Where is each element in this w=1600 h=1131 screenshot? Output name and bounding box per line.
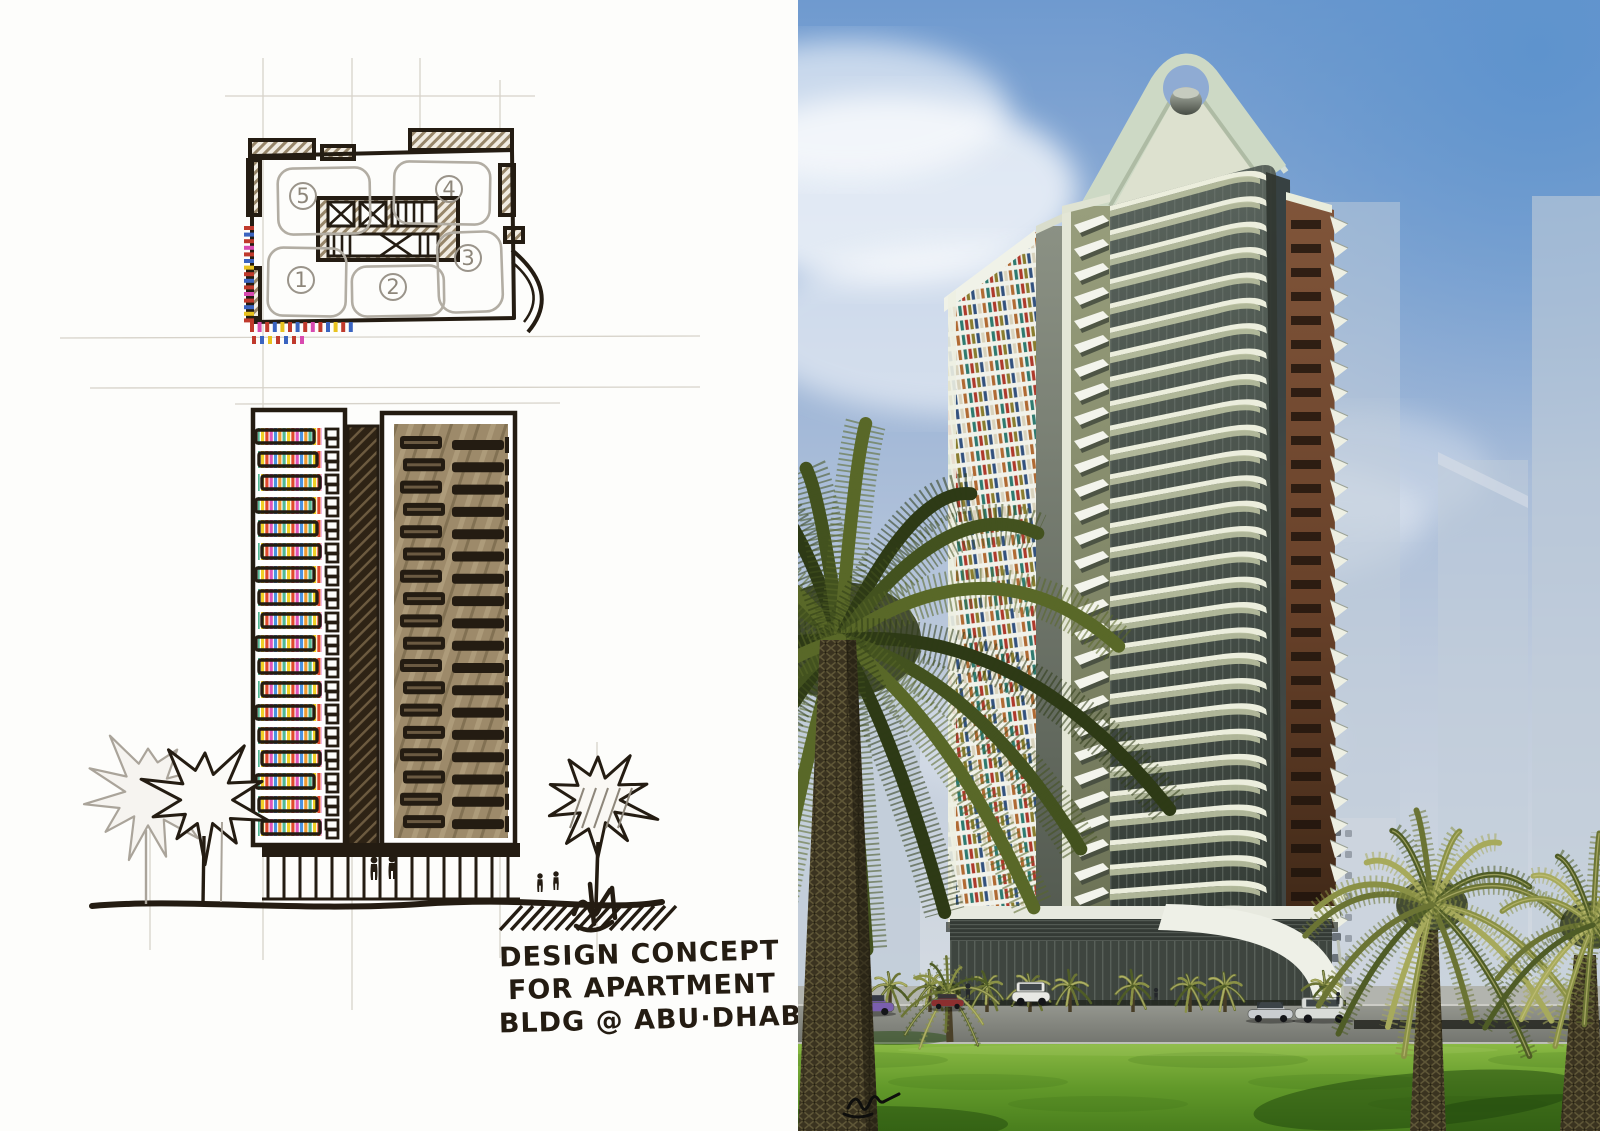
car-wheel <box>936 1004 941 1009</box>
bar-highlight <box>407 731 441 734</box>
brown-window-slot <box>1291 604 1321 613</box>
window-square <box>327 577 338 585</box>
bar-highlight <box>404 619 438 622</box>
bar-highlight <box>407 686 441 689</box>
plan-tick <box>258 322 262 332</box>
room-label-2: 2 <box>386 275 399 299</box>
floor-plan-sketch: 5 4 3 1 2 <box>244 130 542 344</box>
ghost-window <box>1345 851 1352 858</box>
plan-tick <box>244 305 254 309</box>
bar-highlight <box>404 664 438 667</box>
bar-end-tick <box>505 705 509 721</box>
window-square <box>327 807 338 815</box>
bar-highlight <box>407 597 441 600</box>
plan-tick <box>244 226 254 230</box>
brown-window-slot <box>1291 748 1321 757</box>
window-square <box>326 429 338 438</box>
plan-tick <box>244 233 254 237</box>
bar-end-tick <box>505 571 509 587</box>
plan-tick <box>268 336 272 344</box>
window-square <box>327 439 338 447</box>
dark-balcony-bar <box>452 752 504 762</box>
bar-end-tick <box>505 727 509 743</box>
bar-end-tick <box>505 749 509 765</box>
bar-end-tick <box>505 526 509 542</box>
sketch-person <box>371 857 378 880</box>
bar-end-tick <box>505 816 509 832</box>
window-square <box>326 751 338 760</box>
car-shadow <box>1246 1018 1296 1023</box>
sketch-panel: 5 4 3 1 2 <box>0 0 798 1131</box>
dark-balcony-bar <box>452 552 504 562</box>
brown-window-slot <box>1291 484 1321 493</box>
window-square <box>326 567 338 576</box>
hatch-stroke <box>621 906 643 930</box>
bar-end-tick <box>505 660 509 676</box>
bar-highlight <box>404 709 438 712</box>
window-square <box>326 659 338 668</box>
window-square <box>327 623 338 631</box>
car-wheel <box>1280 1015 1287 1022</box>
dark-balcony-bar <box>452 485 504 495</box>
plan-tick <box>250 322 254 332</box>
brown-window-slot <box>1291 892 1321 901</box>
plan-tick <box>244 285 254 289</box>
plan-tick <box>284 336 288 344</box>
bar-highlight <box>407 776 441 779</box>
tree-trunk <box>221 822 222 902</box>
brown-window-slot <box>1291 292 1321 301</box>
plan-tick <box>244 292 254 296</box>
plan-tick <box>318 322 322 332</box>
plan-tick <box>288 322 292 332</box>
brown-window-slot <box>1291 340 1321 349</box>
hatch-stroke <box>533 906 555 930</box>
bar-end-tick <box>505 459 509 475</box>
window-square <box>327 830 338 838</box>
dark-balcony-bar <box>452 663 504 673</box>
window-square <box>326 590 338 599</box>
plan-tick <box>326 322 330 332</box>
hatch-stroke <box>544 906 566 930</box>
window-square <box>326 682 338 691</box>
window-square <box>326 774 338 783</box>
ghost-window <box>1345 935 1352 942</box>
window-square <box>326 728 338 737</box>
tree-trunk <box>596 842 598 905</box>
plan-tick <box>292 336 296 344</box>
bar-highlight <box>407 553 441 556</box>
bar-end-tick <box>505 772 509 788</box>
window-square <box>326 498 338 507</box>
plan-tick <box>296 322 300 332</box>
window-square <box>326 613 338 622</box>
plan-tick <box>300 336 304 344</box>
brown-window-slot <box>1291 412 1321 421</box>
brown-window-slot <box>1291 436 1321 445</box>
plan-tick <box>244 252 254 256</box>
window-square <box>327 761 338 769</box>
plan-tick <box>265 322 269 332</box>
plan-tick <box>244 246 254 250</box>
presentation-board: 5 4 3 1 2 <box>0 0 1600 1131</box>
car-wheel <box>1255 1015 1262 1022</box>
dark-balcony-bar <box>452 797 504 807</box>
window-square <box>326 636 338 645</box>
brown-window-slot <box>1291 628 1321 637</box>
hatch-stroke <box>522 906 544 930</box>
brown-window-slot <box>1291 460 1321 469</box>
render-panel <box>798 0 1600 1131</box>
brown-window-slot <box>1291 556 1321 565</box>
dark-balcony-bar <box>452 440 504 450</box>
window-square <box>326 521 338 530</box>
bar-highlight <box>407 642 441 645</box>
room-label-3: 3 <box>461 246 474 270</box>
sketch-person <box>537 873 543 892</box>
dark-balcony-bar <box>452 462 504 472</box>
window-square <box>327 738 338 746</box>
car-windows <box>938 994 957 999</box>
hatch-stroke <box>643 906 665 930</box>
bar-end-tick <box>505 593 509 609</box>
ghost-window <box>1345 830 1352 837</box>
window-square <box>327 554 338 562</box>
brown-window-slot <box>1291 844 1321 853</box>
podium <box>948 904 1346 1006</box>
brown-window-slot <box>1291 532 1321 541</box>
bar-highlight <box>404 486 438 489</box>
plan-tick <box>311 322 315 332</box>
plan-tick <box>349 322 353 332</box>
window-square <box>327 531 338 539</box>
plan-tick <box>244 266 254 270</box>
elevation-sketch <box>84 410 676 930</box>
grass-patch <box>1008 1096 1188 1112</box>
window-square <box>326 820 338 829</box>
brown-window-slot <box>1291 676 1321 685</box>
dark-balcony-bar <box>452 641 504 651</box>
brown-window-slot <box>1291 652 1321 661</box>
tower-rendering <box>798 0 1600 1131</box>
plan-tick <box>244 279 254 283</box>
brown-window-slot <box>1291 268 1321 277</box>
plan-tick <box>252 336 256 344</box>
main-balcony-facade <box>1110 165 1292 928</box>
car-windows <box>1257 1002 1283 1008</box>
dark-balcony-bar <box>452 775 504 785</box>
window-square <box>326 705 338 714</box>
window-square <box>327 669 338 677</box>
dark-balcony-bar <box>452 618 504 628</box>
bar-highlight <box>404 575 438 578</box>
plan-tick <box>303 322 307 332</box>
plan-tick <box>280 322 284 332</box>
window-square <box>326 475 338 484</box>
window-square <box>327 692 338 700</box>
sketch-drawing: 5 4 3 1 2 <box>0 0 798 1131</box>
bar-end-tick <box>505 682 509 698</box>
plan-tick <box>244 318 254 322</box>
bar-end-tick <box>505 638 509 654</box>
brown-window-slot <box>1291 820 1321 829</box>
ghost-window <box>1332 933 1341 941</box>
dark-balcony-bar <box>452 708 504 718</box>
plan-tick <box>244 239 254 243</box>
hatch-stroke <box>500 906 522 930</box>
bar-highlight <box>404 441 438 444</box>
window-square <box>327 715 338 723</box>
plan-tick <box>244 259 254 263</box>
window-square <box>327 462 338 470</box>
plan-tick <box>244 272 254 276</box>
brown-window-slot <box>1291 724 1321 733</box>
dark-balcony-bar <box>452 596 504 606</box>
car-wheel <box>1304 1015 1312 1023</box>
sketch-person <box>389 856 396 879</box>
room-label-5: 5 <box>296 184 309 208</box>
grass-patch <box>888 1074 1068 1090</box>
brown-window-slot <box>1291 868 1321 877</box>
dark-balcony-bar <box>452 529 504 539</box>
dark-balcony-bar <box>452 507 504 517</box>
brown-window-slot <box>1291 508 1321 517</box>
dark-balcony-bar <box>452 574 504 584</box>
brown-window-slot <box>1291 796 1321 805</box>
bar-highlight <box>407 463 441 466</box>
window-square <box>326 452 338 461</box>
caption-line-1: DESIGN CONCEPT <box>499 935 780 973</box>
caption-line-3: BLDG @ ABU·DHABI <box>498 1000 798 1039</box>
bar-end-tick <box>505 794 509 810</box>
bar-end-tick <box>505 504 509 520</box>
car-wheel <box>954 1004 959 1009</box>
window-square <box>327 485 338 493</box>
plan-tick <box>260 336 264 344</box>
bar-highlight <box>404 798 438 801</box>
brown-window-slot <box>1291 772 1321 781</box>
bar-highlight <box>407 508 441 511</box>
car-wheel <box>881 1008 888 1015</box>
sketch-person <box>553 871 559 890</box>
bar-highlight <box>404 530 438 533</box>
bar-highlight <box>404 753 438 756</box>
plan-tick <box>276 336 280 344</box>
tree-trunk <box>203 836 204 904</box>
window-square <box>326 797 338 806</box>
room-label-4: 4 <box>442 177 455 201</box>
car-shadow <box>929 1006 965 1011</box>
room-label-1: 1 <box>294 268 307 292</box>
plan-tick <box>244 299 254 303</box>
window-square <box>327 646 338 654</box>
brown-window-slot <box>1291 244 1321 253</box>
car-windows <box>1020 984 1042 991</box>
bar-end-tick <box>505 549 509 565</box>
dark-balcony-bar <box>452 730 504 740</box>
caption-line-2: FOR APARTMENT <box>508 968 777 1006</box>
plan-tick <box>273 322 277 332</box>
hatch-stroke <box>632 906 654 930</box>
plan-tick <box>244 312 254 316</box>
bar-highlight <box>407 820 441 823</box>
hatch-stroke <box>654 906 676 930</box>
plan-tick <box>341 322 345 332</box>
brown-window-slot <box>1291 316 1321 325</box>
sketch-people <box>371 856 559 892</box>
brown-window-slot <box>1291 388 1321 397</box>
hatch-stroke <box>511 906 533 930</box>
sketch-tree-canopy <box>549 756 657 857</box>
window-square <box>327 784 338 792</box>
window-square <box>327 508 338 516</box>
caption: DESIGN CONCEPT FOR APARTMENT BLDG @ ABU·… <box>497 934 798 1039</box>
brown-window-slot <box>1291 580 1321 589</box>
dark-balcony-bar <box>452 685 504 695</box>
window-square <box>327 600 338 608</box>
brown-window-slot <box>1291 700 1321 709</box>
car-wheel <box>1017 998 1025 1006</box>
bar-end-tick <box>505 482 509 498</box>
apartment-tower <box>938 165 1348 934</box>
brown-window-slot <box>1291 364 1321 373</box>
brown-window-slot <box>1291 220 1321 229</box>
window-square <box>326 544 338 553</box>
bar-end-tick <box>505 615 509 631</box>
car-wheel <box>1038 998 1046 1006</box>
plan-tick <box>334 322 338 332</box>
dark-balcony-bar <box>452 819 504 829</box>
bar-end-tick <box>505 437 509 453</box>
